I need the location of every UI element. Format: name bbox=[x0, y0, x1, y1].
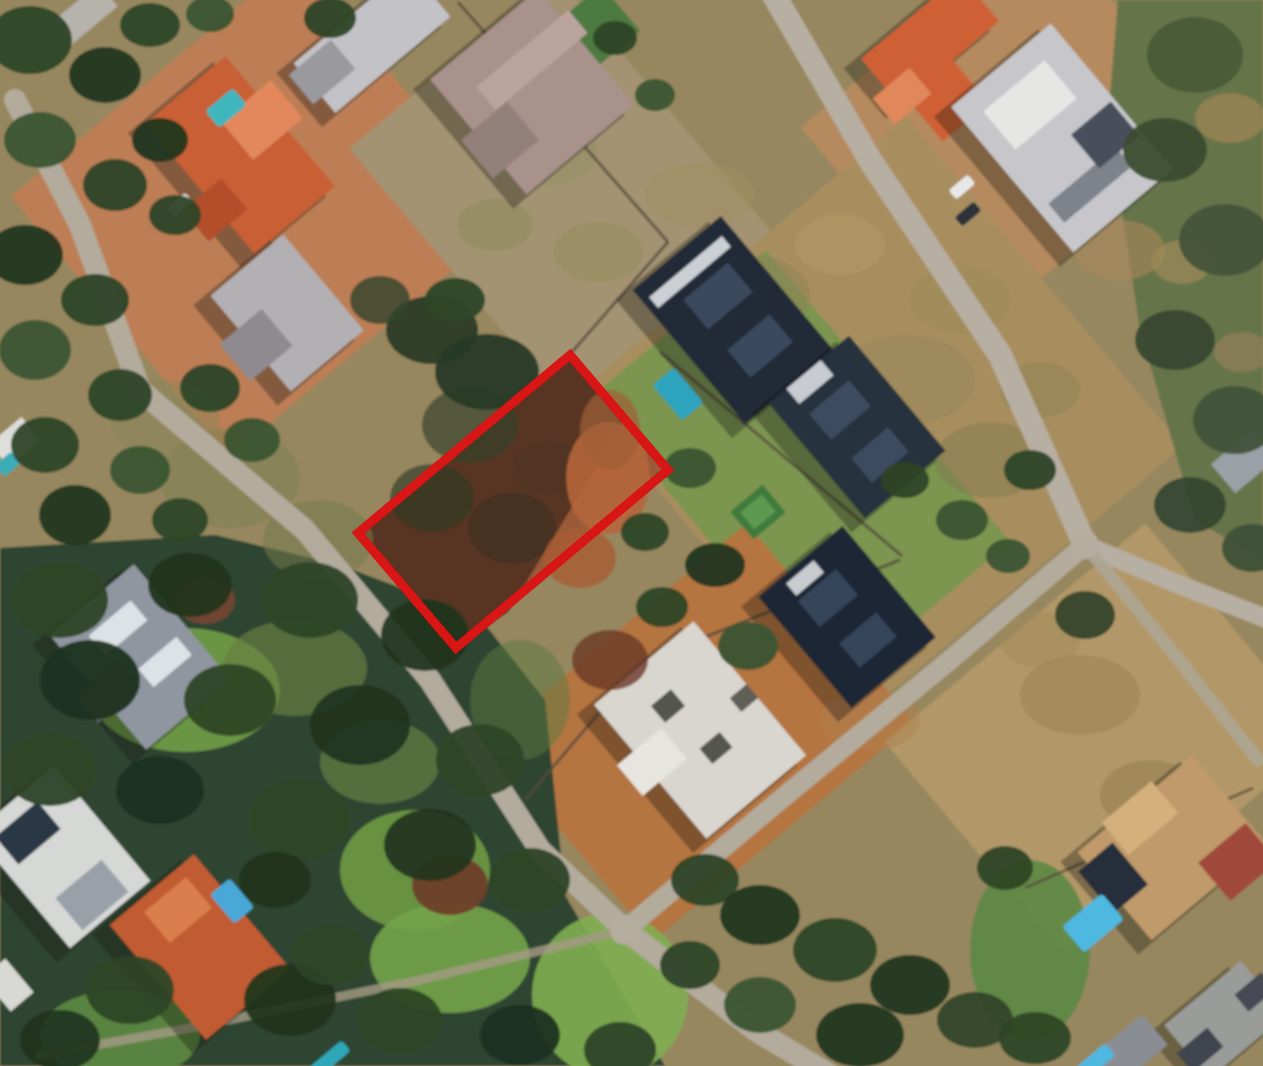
tree bbox=[11, 417, 79, 473]
terrain-patch bbox=[350, 276, 410, 324]
terrain-layer bbox=[0, 0, 1263, 1066]
tree bbox=[1004, 450, 1056, 490]
tree bbox=[1135, 310, 1215, 370]
tree bbox=[384, 809, 476, 881]
tree bbox=[636, 587, 688, 627]
tree bbox=[593, 21, 637, 55]
tree bbox=[39, 485, 111, 545]
tree bbox=[132, 118, 188, 162]
tree bbox=[986, 539, 1030, 573]
tree bbox=[69, 47, 141, 103]
tree bbox=[4, 734, 96, 806]
tree bbox=[621, 513, 669, 551]
tree bbox=[358, 988, 442, 1052]
terrain-patch bbox=[544, 528, 616, 588]
tree bbox=[635, 79, 675, 111]
tree bbox=[793, 918, 877, 982]
tree bbox=[480, 1005, 560, 1065]
terrain-patch bbox=[645, 163, 755, 227]
tree bbox=[83, 159, 147, 211]
tree bbox=[1123, 118, 1207, 182]
terrain-patch bbox=[795, 215, 885, 275]
tree bbox=[490, 848, 570, 912]
tree bbox=[0, 320, 71, 380]
tree bbox=[870, 955, 950, 1015]
tree bbox=[685, 543, 745, 587]
tree bbox=[86, 956, 174, 1024]
road-junction bbox=[1071, 531, 1099, 559]
tree bbox=[999, 1012, 1071, 1064]
tree bbox=[881, 462, 929, 498]
tree bbox=[116, 756, 204, 824]
tree bbox=[720, 885, 800, 945]
tree bbox=[239, 852, 311, 908]
tree bbox=[292, 925, 368, 985]
satellite-map bbox=[0, 0, 1263, 1066]
tree bbox=[224, 418, 280, 462]
tree bbox=[40, 640, 140, 720]
tree bbox=[184, 664, 276, 736]
tree bbox=[12, 562, 108, 638]
tree bbox=[152, 498, 208, 542]
tree bbox=[1055, 591, 1115, 639]
tree bbox=[816, 1003, 904, 1066]
tree bbox=[120, 3, 180, 47]
tree bbox=[262, 562, 358, 638]
terrain-patch bbox=[1195, 93, 1263, 143]
aerial-photo-stage bbox=[0, 0, 1263, 1066]
tree bbox=[1154, 477, 1226, 533]
tree bbox=[1147, 17, 1243, 93]
tree bbox=[310, 685, 410, 765]
road-junction bbox=[610, 915, 640, 945]
terrain-patch bbox=[457, 199, 533, 251]
tree bbox=[88, 369, 152, 421]
tree bbox=[436, 724, 524, 796]
tree bbox=[149, 195, 201, 235]
tree bbox=[718, 622, 778, 670]
tree bbox=[724, 977, 796, 1033]
terrain-patch bbox=[468, 492, 556, 564]
tree bbox=[148, 553, 232, 617]
tree bbox=[4, 112, 76, 168]
tree bbox=[936, 500, 988, 540]
tree bbox=[977, 846, 1033, 890]
tree bbox=[660, 941, 720, 989]
tree bbox=[110, 446, 170, 494]
terrain-patch bbox=[553, 222, 643, 282]
tree bbox=[572, 630, 648, 690]
tree bbox=[61, 274, 129, 326]
tree bbox=[180, 364, 240, 412]
tree bbox=[425, 278, 485, 322]
tree bbox=[250, 780, 350, 860]
